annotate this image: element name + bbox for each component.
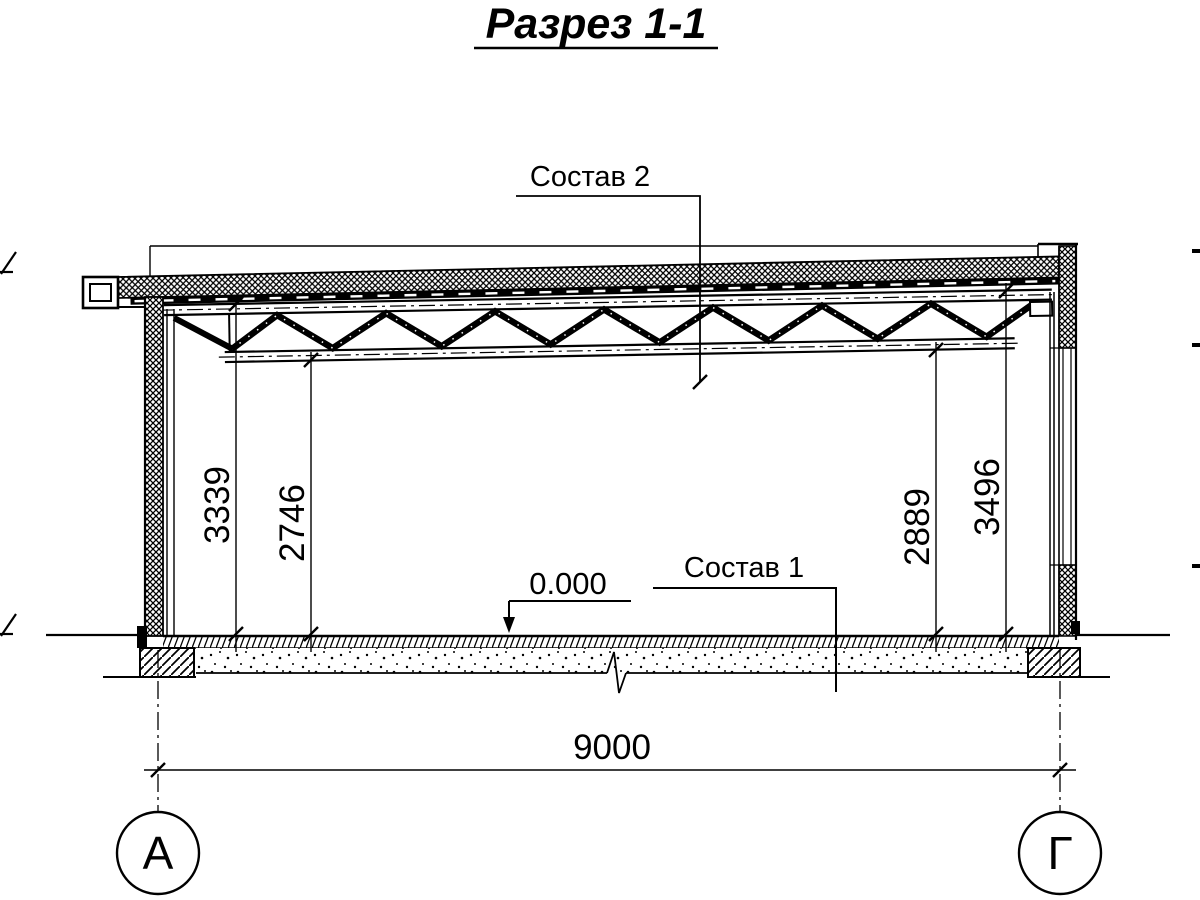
floor-elevation-label: 0.000 xyxy=(529,566,607,601)
drawing-title: Разрез 1-1 xyxy=(486,0,707,48)
span-dimension-label: 9000 xyxy=(573,728,651,767)
right-wall-base-detail xyxy=(1071,621,1080,634)
truss-right-bearing-pad xyxy=(1030,302,1052,316)
axis-bubble-left: А xyxy=(117,812,199,894)
floor-callout-label: Состав 1 xyxy=(684,552,804,584)
dim-height-left-outer-label: 3339 xyxy=(198,466,237,544)
foundation-right xyxy=(1028,648,1080,677)
drawing-sheet: Разрез 1-1 xyxy=(0,0,1200,900)
drawing-title-block: Разрез 1-1 xyxy=(474,0,718,48)
dim-height-right-outer-label: 3496 xyxy=(968,458,1007,536)
dim-height-left-inner-label: 2746 xyxy=(273,484,312,562)
roof-callout-label: Состав 2 xyxy=(530,161,650,193)
axis-label-right: Г xyxy=(1048,827,1073,879)
right-wall-upper-hatch xyxy=(1059,246,1076,348)
section-drawing-canvas: Разрез 1-1 xyxy=(0,0,1200,900)
floor-screed-hatch xyxy=(163,636,1059,648)
dim-height-right-inner-label: 2889 xyxy=(898,488,937,566)
axis-bubble-right: Г xyxy=(1019,812,1101,894)
left-wall-base-detail xyxy=(137,626,147,648)
axis-label-left: А xyxy=(143,827,174,879)
foundation-left xyxy=(140,648,194,677)
